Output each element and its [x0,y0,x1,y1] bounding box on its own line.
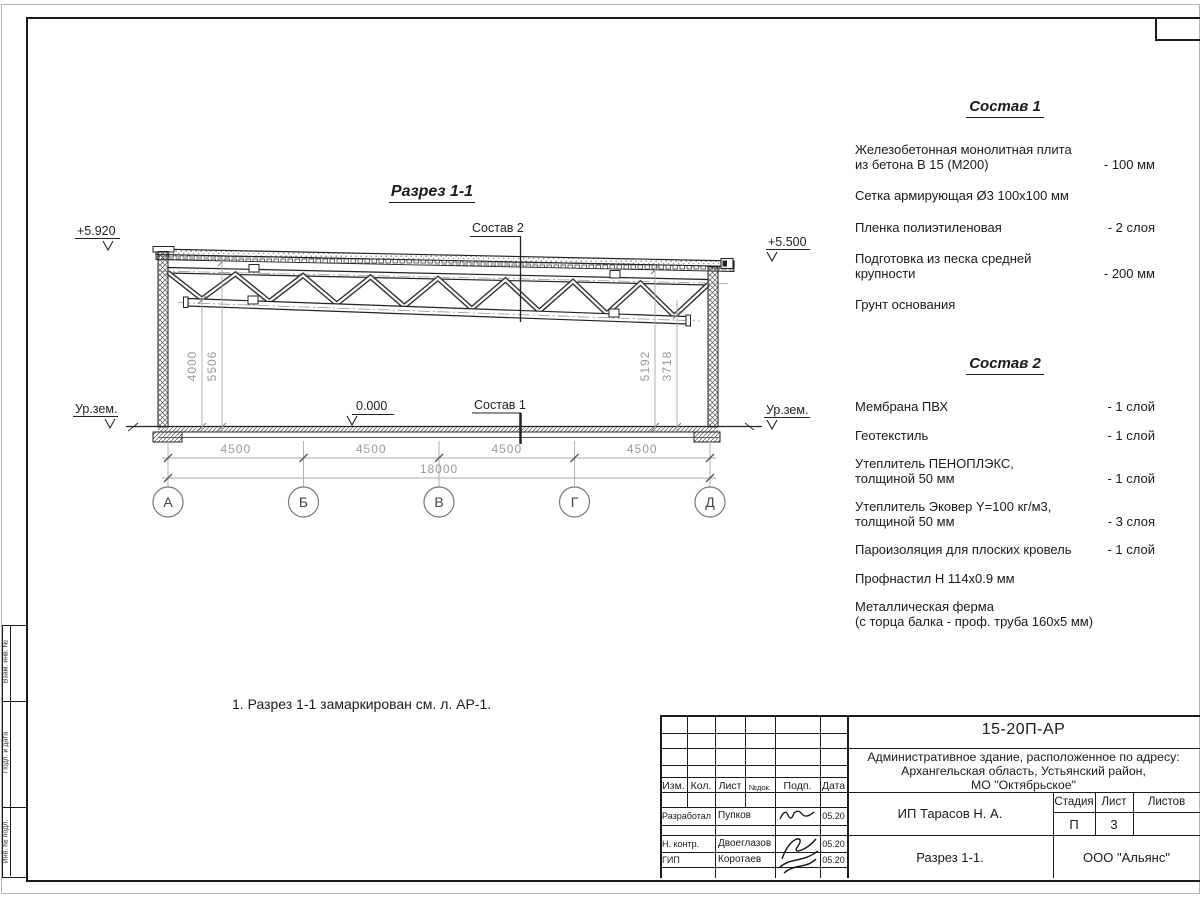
truss-gusset [610,271,620,279]
truss-gusset [609,309,619,317]
list-item: Металлическая ферма(с торца балка - проф… [855,600,1155,629]
row-role: Разработал [662,811,711,821]
list-item: Железобетонная монолитная плитаиз бетона… [855,143,1155,172]
roof-buildup [156,249,734,272]
axis-label: В [434,494,443,510]
sheet-number: 3 [1095,817,1133,832]
row-date: 05.20 [820,811,847,821]
project-line: МО "Октябрьское" [847,778,1200,792]
row-date: 05.20 [820,839,847,849]
grid-axes: А Б В Г Д [153,487,725,517]
list-item: Профнастил Н 114х0.9 мм [855,572,1155,587]
client-name: ИП Тарасов Н. А. [847,806,1053,821]
stage-value: П [1053,817,1095,832]
axis-label: А [163,494,173,510]
section-drawing: +5.920 +5.500 Ур.зем. Ур.зем. 0.000 Сост… [60,180,840,530]
horizontal-dimensions: 4500 4500 4500 4500 18000 [162,441,716,487]
row-name: Пупков [718,810,751,821]
level-arrow-icon [767,420,777,429]
dim-height: 5192 [638,351,652,382]
level-arrow-icon [347,416,357,425]
truss-gusset [249,265,259,273]
drawing-sheet: Взам. инв. № Подп. и дата Инв. № подл. Р… [0,0,1200,900]
signature [776,829,822,875]
list-item: Утеплитель ПЕНОПЛЭКС,толщиной 50 мм - 1 … [855,457,1155,486]
row-name: Двоеглазов [718,838,771,849]
ground-right-label: Ур.зем. [766,403,808,417]
list-item: Пароизоляция для плоских кровель - 1 сло… [855,543,1155,558]
right-foundation [694,432,720,442]
sostav2-title: Состав 2 [855,355,1155,372]
frame-corner-box [1155,19,1200,41]
row-name: Коротаев [718,854,761,865]
floor-slab [126,423,762,442]
left-foundation [153,432,182,442]
left-wall [158,252,168,428]
dim-span: 4500 [356,442,387,456]
list-item: Подготовка из песка среднейкрупности - 2… [855,252,1155,281]
list-item: Мембрана ПВХ - 1 слой [855,400,1155,415]
stage-header: Лист [1095,796,1133,808]
list-item: Сетка армирующая Ø3 100х100 мм [855,189,1155,204]
signature [778,806,818,824]
col-header: №док. [745,783,775,792]
dim-span: 4500 [491,442,522,456]
roof-truss [158,265,728,327]
elevation-left-label: +5.920 [77,224,116,238]
col-header: Лист [715,780,745,792]
row-role: Н. контр. [662,839,699,849]
axis-label: Д [705,494,715,510]
level-arrow-icon [767,252,777,261]
col-header: Подп. [775,780,820,792]
side-stamp-divider [10,626,11,876]
row-date: 05.20 [820,855,847,865]
stage-header: Листов [1133,796,1200,808]
zero-level-label: 0.000 [356,399,387,413]
side-stamp-label: Взам. инв. № [3,632,10,692]
right-wall [708,267,718,427]
project-line: Архангельская область, Устьянский район, [847,764,1200,778]
company-name: ООО "Альянс" [1053,850,1200,865]
elevation-right-label: +5.500 [768,235,807,249]
truss-gusset [248,296,258,304]
dim-span: 4500 [627,442,658,456]
sheet-title: Разрез 1-1. [847,850,1053,865]
sostav2-leader-label: Состав 2 [472,221,524,235]
stage-header: Стадия [1053,796,1095,808]
sostav2-panel: Состав 2 Мембрана ПВХ - 1 слой Геотексти… [855,355,1155,643]
dim-total: 18000 [420,462,458,476]
roof-edge-cap-plate [723,261,728,267]
row-role: ГИП [662,855,680,865]
col-header: Изм. [660,780,687,792]
sostav1-leader-label: Состав 1 [474,398,526,412]
dim-span: 4500 [220,442,251,456]
col-header: Дата [820,780,847,792]
axis-label: Б [299,494,308,510]
col-header: Кол. [687,780,715,792]
axis-label: Г [571,494,579,510]
dim-height: 3718 [660,351,674,382]
dim-height: 4000 [185,351,199,382]
note-text: 1. Разрез 1-1 замаркирован см. л. АР-1. [232,696,491,712]
sostav1-title: Состав 1 [855,98,1155,115]
project-line: Административное здание, расположенное п… [847,750,1200,764]
side-stamp-label: Инв. № подл. [3,812,10,872]
doc-number: 15-20П-АР [847,721,1200,739]
level-arrow-icon [103,241,113,250]
ground-left-label: Ур.зем. [75,402,117,416]
sostav1-panel: Состав 1 Железобетонная монолитная плита… [855,98,1155,330]
side-stamp-label: Подп. и дата [3,713,10,793]
level-arrow-icon [105,419,115,428]
dim-height: 5506 [205,351,219,382]
list-item: Пленка полиэтиленовая - 2 слоя [855,221,1155,236]
list-item: Геотекстиль - 1 слой [855,429,1155,444]
list-item: Грунт основания [855,298,1155,313]
list-item: Утеплитель Эковер Y=100 кг/м3,толщиной 5… [855,500,1155,529]
